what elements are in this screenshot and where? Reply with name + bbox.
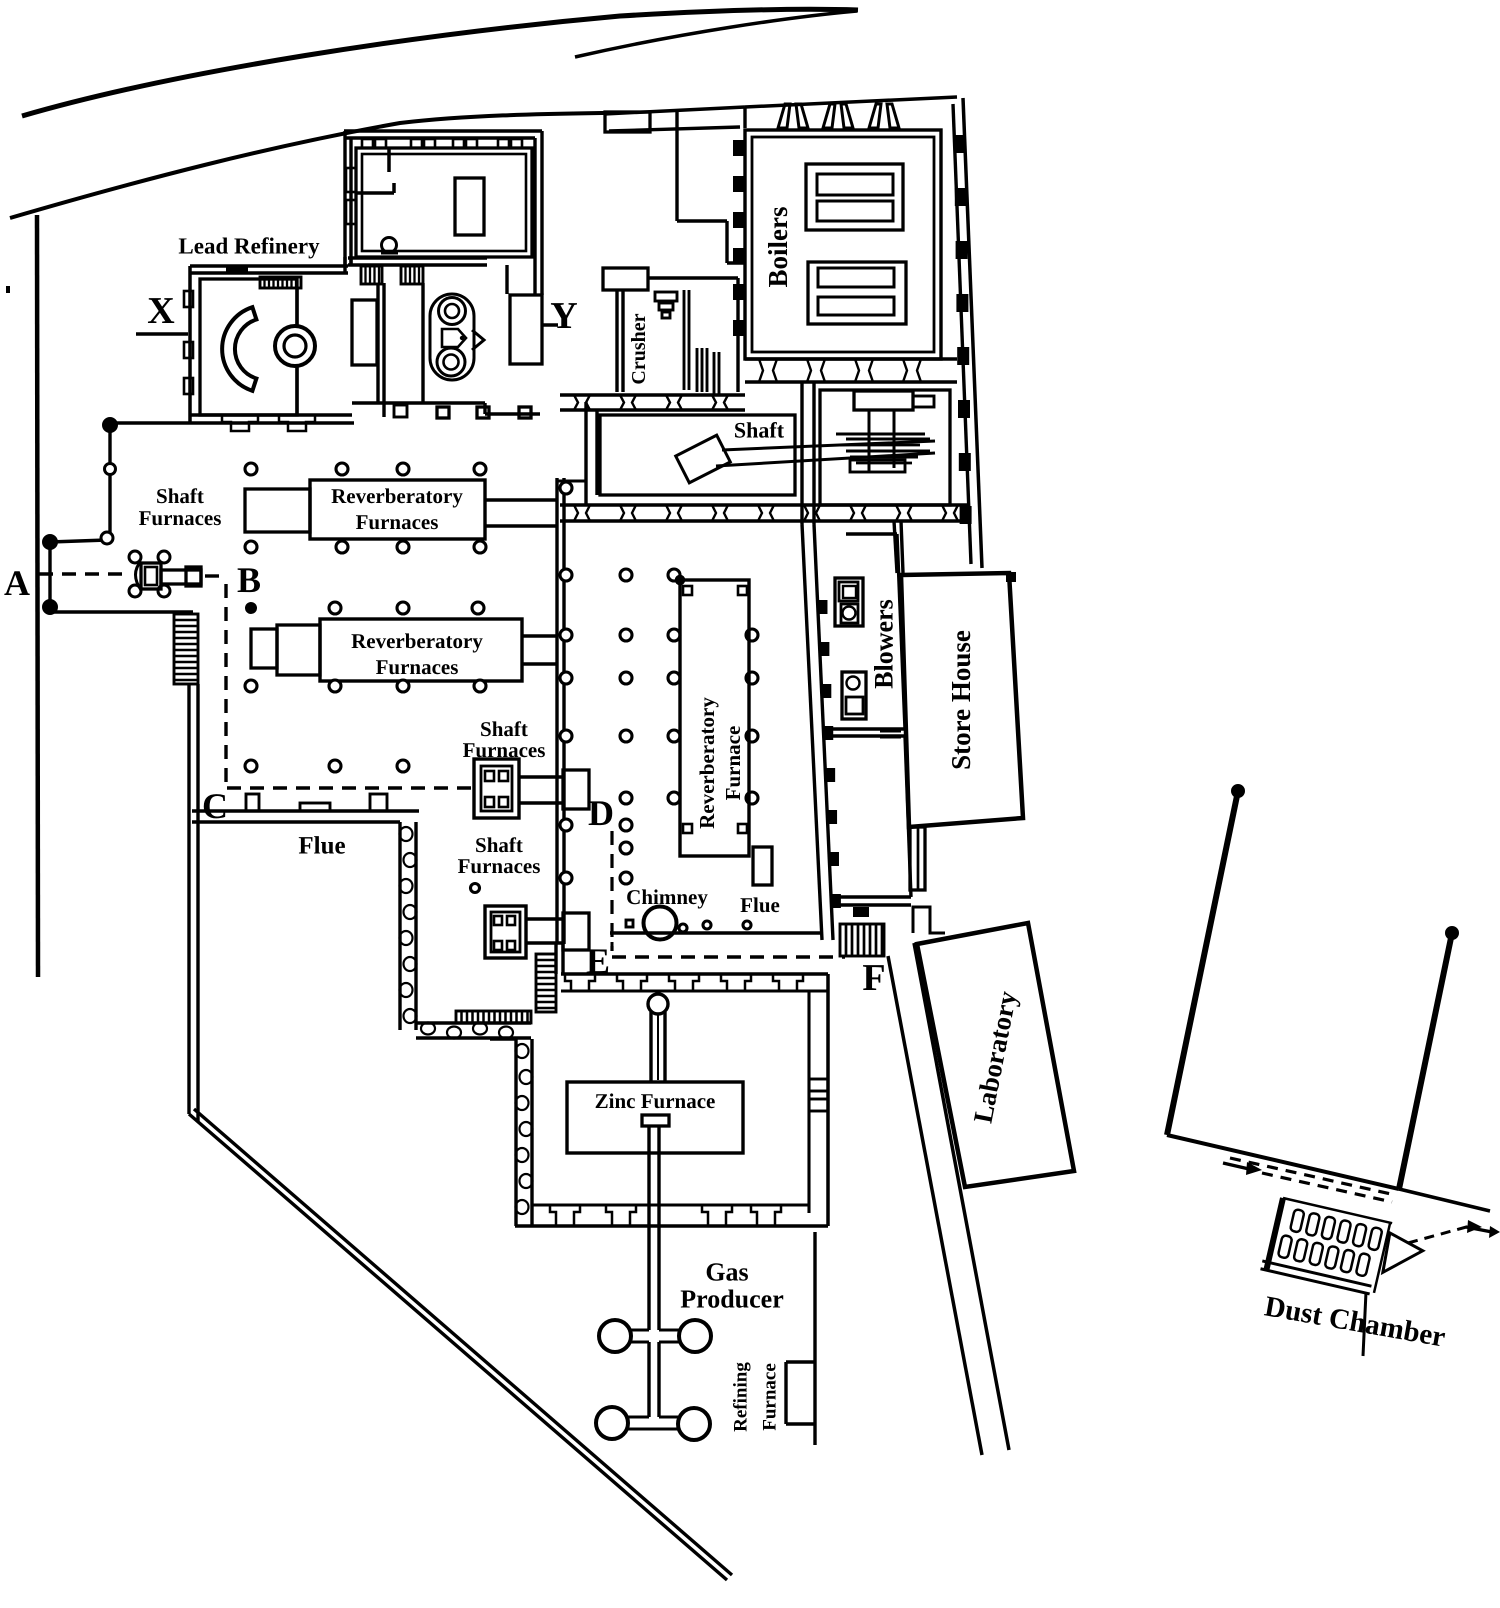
svg-text:Reverberatory: Reverberatory [695, 697, 719, 829]
svg-text:Gas: Gas [705, 1257, 748, 1286]
svg-text:Crusher: Crusher [628, 313, 650, 384]
svg-text:Zinc Furnace: Zinc Furnace [595, 1089, 716, 1113]
svg-text:Furnace: Furnace [760, 1363, 781, 1431]
svg-text:Reverberatory: Reverberatory [351, 629, 483, 653]
svg-text:Store House: Store House [946, 630, 976, 770]
svg-text:Furnaces: Furnaces [139, 506, 222, 530]
svg-text:C: C [202, 786, 228, 826]
svg-text:F: F [862, 957, 885, 999]
svg-text:D: D [588, 793, 614, 833]
svg-text:Refining: Refining [731, 1362, 752, 1432]
svg-text:Reverberatory: Reverberatory [331, 484, 463, 508]
svg-text:Lead Refinery: Lead Refinery [178, 233, 320, 258]
svg-text:B: B [237, 560, 261, 600]
svg-text:Flue: Flue [298, 832, 345, 859]
svg-text:Producer: Producer [680, 1284, 784, 1313]
svg-text:A: A [4, 563, 30, 603]
svg-text:Shaft: Shaft [734, 417, 785, 442]
svg-text:Blowers: Blowers [870, 599, 899, 689]
svg-text:Furnace: Furnace [721, 726, 745, 801]
svg-text:Furnaces: Furnaces [458, 854, 541, 878]
svg-text:Flue: Flue [740, 893, 780, 917]
svg-text:Shaft: Shaft [156, 484, 204, 508]
svg-text:Chimney: Chimney [626, 885, 708, 909]
svg-text:X: X [147, 290, 174, 332]
svg-text:Furnaces: Furnaces [356, 510, 439, 534]
svg-text:Furnaces: Furnaces [376, 655, 459, 679]
svg-text:Y: Y [550, 295, 577, 337]
svg-text:Boilers: Boilers [763, 207, 793, 288]
